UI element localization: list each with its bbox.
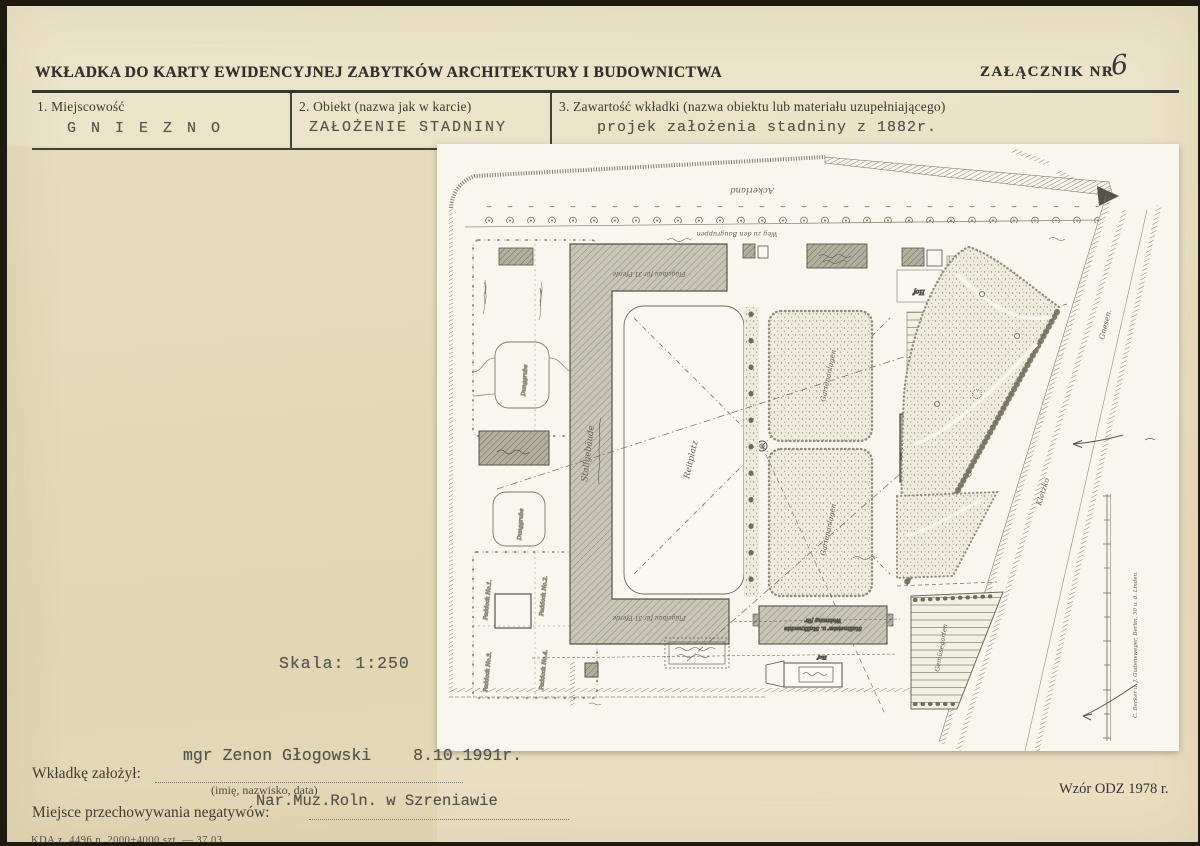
- card-title: WKŁADKA DO KARTY EWIDENCYJNEJ ZABYTKÓW A…: [35, 64, 722, 82]
- form-code: Wzór ODZ 1978 r.: [1059, 781, 1169, 798]
- scale-note: Skala: 1:250: [279, 654, 410, 673]
- founder-name: mgr Zenon Głogowski: [183, 746, 371, 765]
- founder-date: 8.10.1991r.: [413, 746, 522, 765]
- founder-typed-line: mgr Zenon Głogowski8.10.1991r.: [183, 746, 522, 765]
- plan-label-wohnung-2: Stallmeister u. Stallknechte: [783, 625, 861, 631]
- attachment-label: ZAŁĄCZNIK NR: [980, 64, 1114, 81]
- field-obiekt-label: 2. Obiekt (nazwa jak w karcie): [299, 99, 471, 115]
- field-separator-2: [550, 93, 552, 149]
- tree-strip: [744, 307, 759, 597]
- field-zawartosc-value: projek założenia stadniny z 1882r.: [597, 119, 937, 136]
- field-separator-1: [290, 93, 292, 149]
- plan-printer-credit: C. Becker u. J. Gudensweger, Berlin, 30 …: [1133, 571, 1139, 718]
- field-miejscowosc-label: 1. Miejscowość: [37, 99, 125, 115]
- negatives-value: Nar.Muz.Roln. w Szreniawie: [256, 792, 498, 810]
- print-code: KDA z. 4496 n. 2000+4000 szt. — 37.03: [31, 835, 223, 846]
- title-rule: [32, 90, 1179, 93]
- field-zawartosc-label: 3. Zawartość wkładki (nazwa obiektu lub …: [559, 99, 946, 115]
- plan-label-fluegelbau-top: Flügelbau für 31 Pferde: [612, 270, 686, 277]
- plan-sheet: Weg zu den Baugruppen Ackerland Kletzko …: [437, 144, 1179, 751]
- record-card: WKŁADKA DO KARTY EWIDENCYJNEJ ZABYTKÓW A…: [7, 6, 1198, 842]
- plan-label-fluegelbau-bottom: Flügelbau für 31 Pferde: [612, 614, 686, 621]
- plan-label-hof: Hof: [912, 288, 926, 295]
- field-obiekt-value: ZAŁOŻENIE STADNINY: [309, 119, 507, 136]
- garden-parcels: Gartenanlagen Gartenanlagen: [769, 311, 872, 596]
- attachment-number-handwritten: 6: [1109, 49, 1129, 82]
- field-miejscowosc-value: G N I E Z N O: [67, 120, 223, 137]
- founder-dotted-line: [155, 768, 463, 783]
- negatives-label: Miejsce przechowywania negatywów:: [32, 804, 270, 822]
- stud-farm-plan-drawing: Weg zu den Baugruppen Ackerland Kletzko …: [437, 144, 1179, 751]
- plan-label-ackerland: Ackerland: [730, 185, 775, 195]
- founder-label: Wkładkę założył:: [32, 765, 141, 783]
- plan-label-weg: Weg zu den Baugruppen: [697, 230, 778, 238]
- scanned-record-card: { "header": { "title": "WKŁADKA DO KARTY…: [0, 0, 1200, 846]
